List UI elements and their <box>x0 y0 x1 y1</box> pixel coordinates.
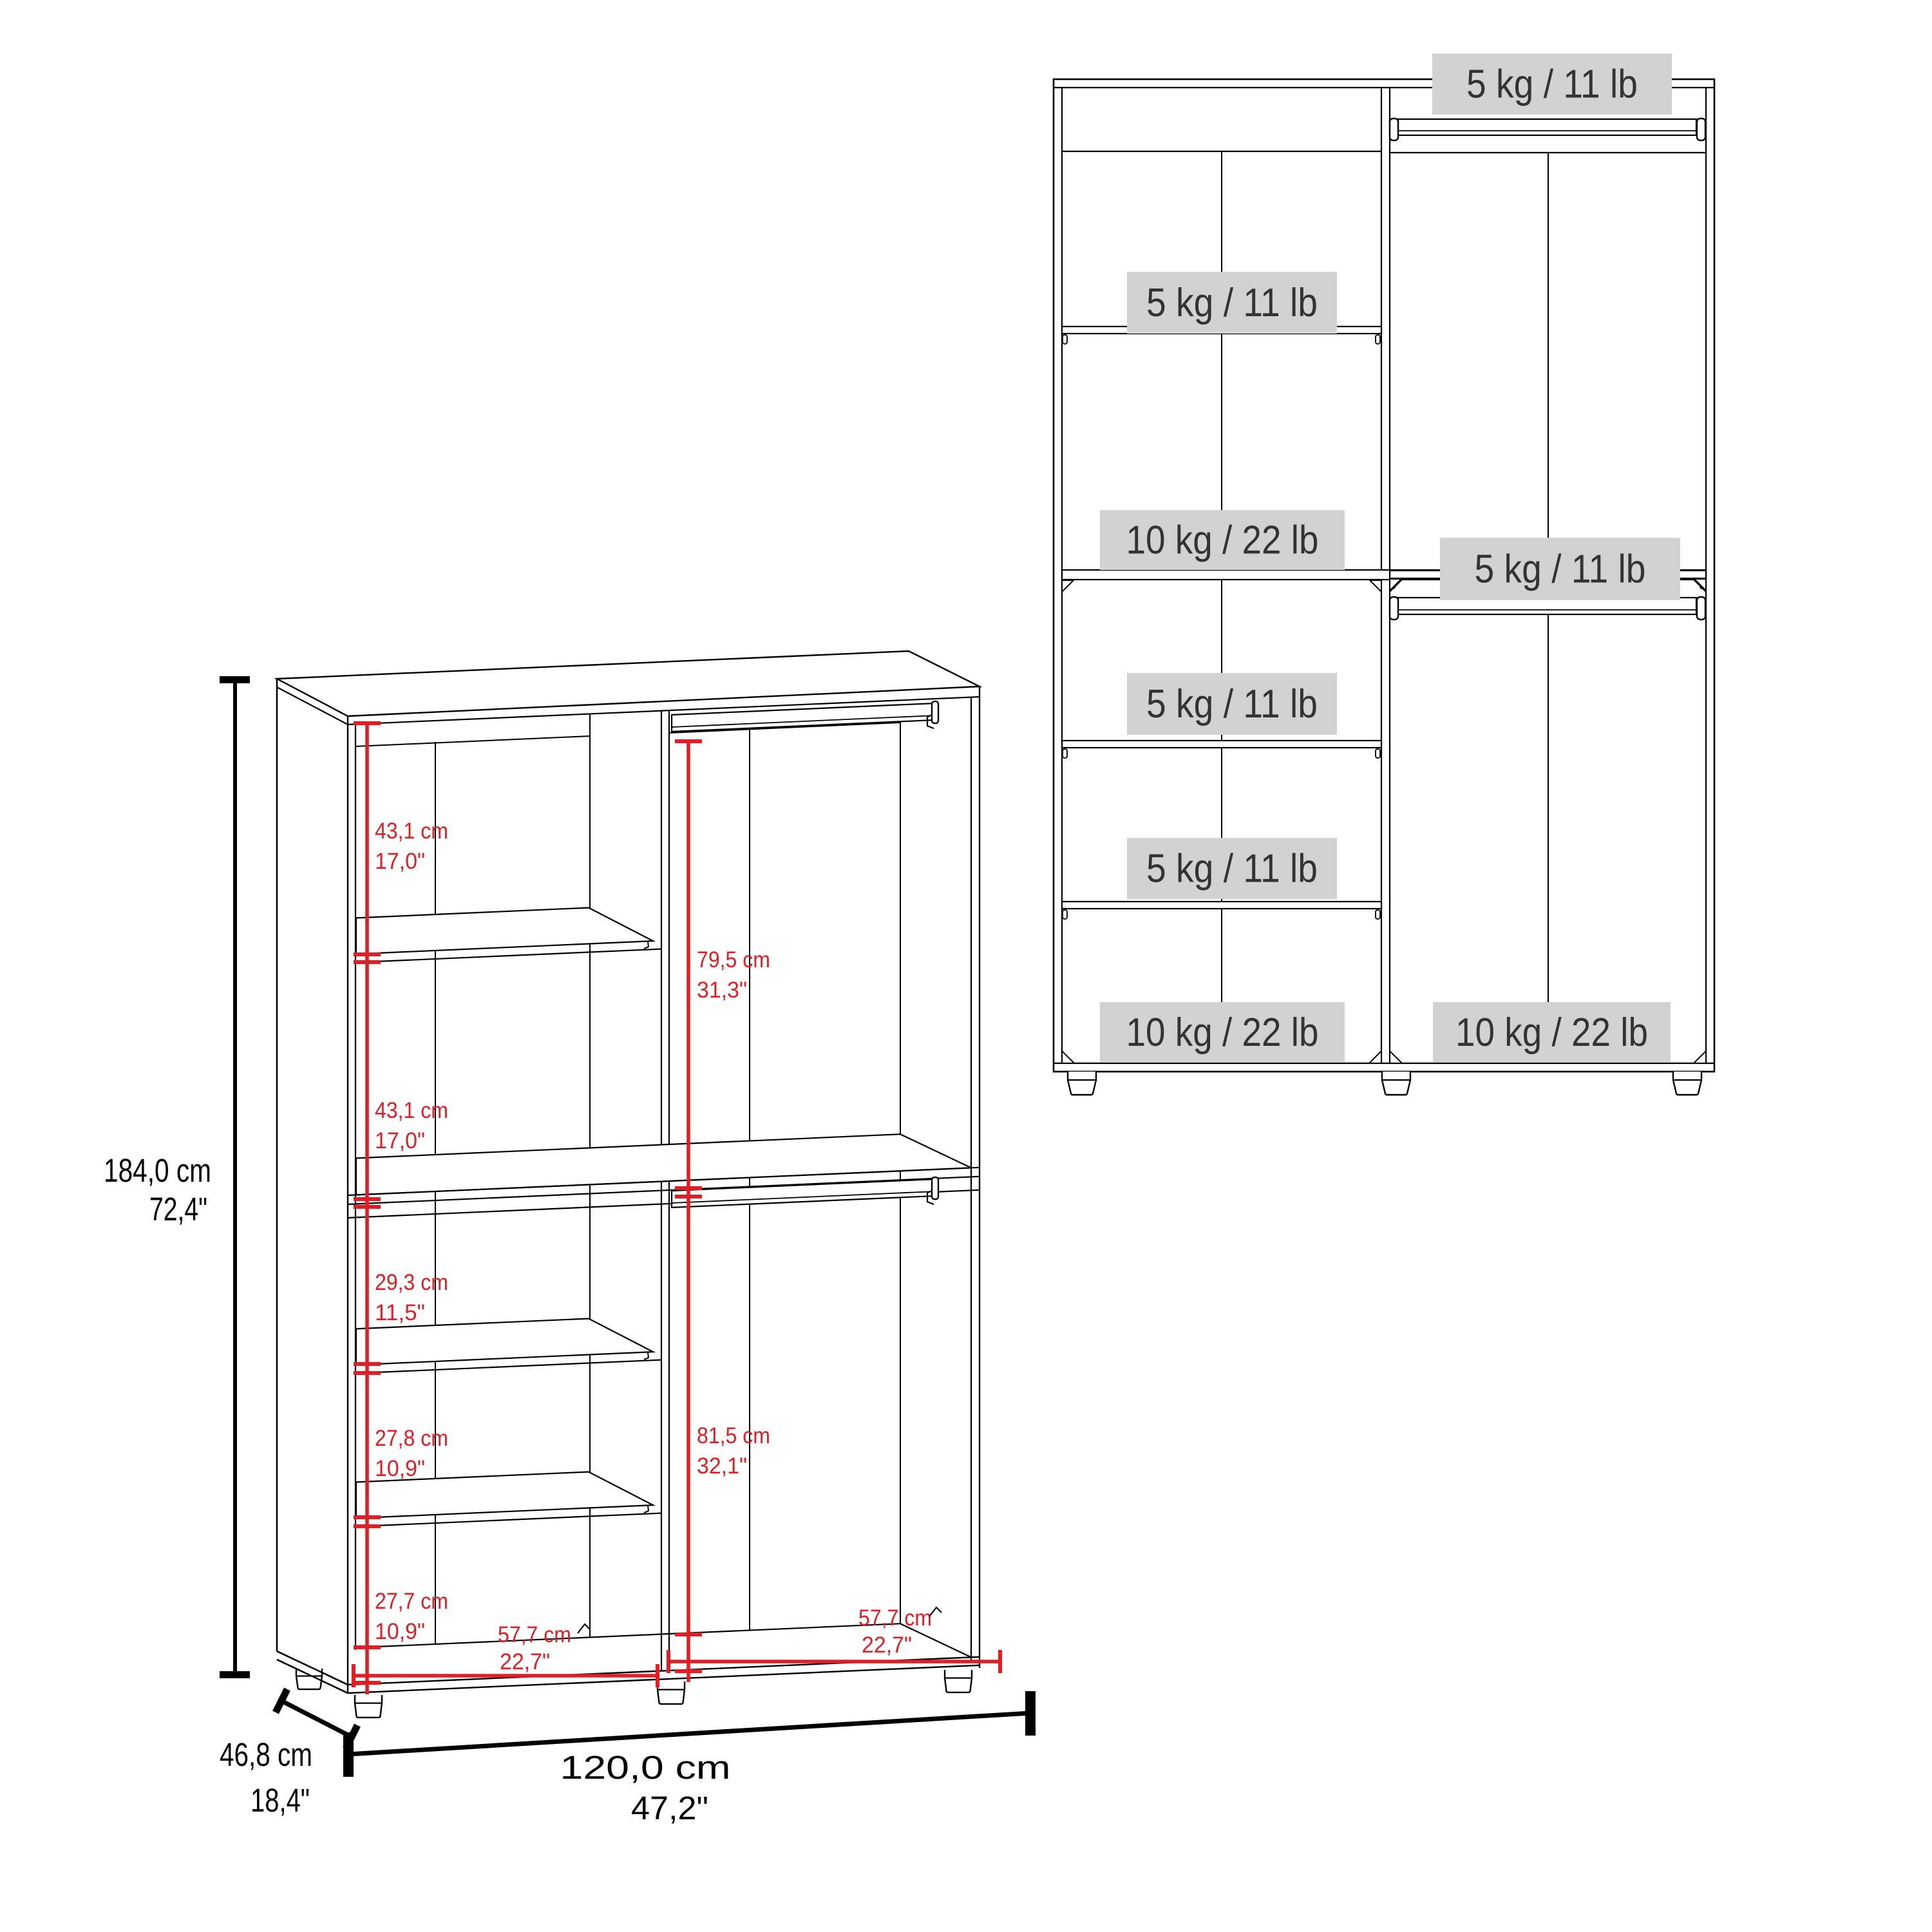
svg-text:10 kg / 22 lb: 10 kg / 22 lb <box>1455 1010 1648 1055</box>
svg-text:10,9": 10,9" <box>375 1619 425 1644</box>
svg-text:5 kg / 11 lb: 5 kg / 11 lb <box>1146 847 1318 891</box>
svg-text:47,2": 47,2" <box>631 1790 708 1826</box>
svg-text:27,8 cm: 27,8 cm <box>375 1426 448 1451</box>
svg-text:10,9": 10,9" <box>375 1456 425 1481</box>
svg-text:5 kg / 11 lb: 5 kg / 11 lb <box>1475 547 1646 592</box>
svg-text:10 kg / 22 lb: 10 kg / 22 lb <box>1126 518 1319 563</box>
svg-text:5 kg / 11 lb: 5 kg / 11 lb <box>1146 281 1318 325</box>
svg-text:184,0 cm: 184,0 cm <box>104 1152 211 1189</box>
svg-text:79,5 cm: 79,5 cm <box>697 947 770 972</box>
svg-text:57,7 cm: 57,7 cm <box>858 1605 932 1631</box>
svg-text:11,5": 11,5" <box>375 1300 425 1325</box>
svg-text:81,5 cm: 81,5 cm <box>697 1423 770 1448</box>
svg-text:10 kg / 22 lb: 10 kg / 22 lb <box>1126 1010 1319 1055</box>
svg-text:5 kg / 11 lb: 5 kg / 11 lb <box>1146 682 1318 726</box>
svg-text:43,1 cm: 43,1 cm <box>375 1098 448 1123</box>
svg-text:22,7": 22,7" <box>862 1633 912 1658</box>
svg-text:72,4": 72,4" <box>149 1191 207 1227</box>
svg-text:27,7 cm: 27,7 cm <box>375 1589 448 1614</box>
svg-text:17,0": 17,0" <box>375 1128 425 1153</box>
svg-text:5 kg / 11 lb: 5 kg / 11 lb <box>1466 62 1638 107</box>
svg-text:57,7 cm: 57,7 cm <box>498 1622 571 1647</box>
svg-text:120,0 cm: 120,0 cm <box>560 1749 731 1786</box>
svg-text:29,3 cm: 29,3 cm <box>375 1270 448 1295</box>
svg-text:43,1 cm: 43,1 cm <box>375 819 448 844</box>
svg-text:32,1": 32,1" <box>697 1454 747 1479</box>
svg-text:18,4": 18,4" <box>251 1782 310 1819</box>
svg-text:46,8 cm: 46,8 cm <box>220 1736 312 1773</box>
svg-text:17,0": 17,0" <box>375 849 425 874</box>
svg-text:22,7": 22,7" <box>500 1649 550 1674</box>
svg-text:31,3": 31,3" <box>697 978 747 1003</box>
